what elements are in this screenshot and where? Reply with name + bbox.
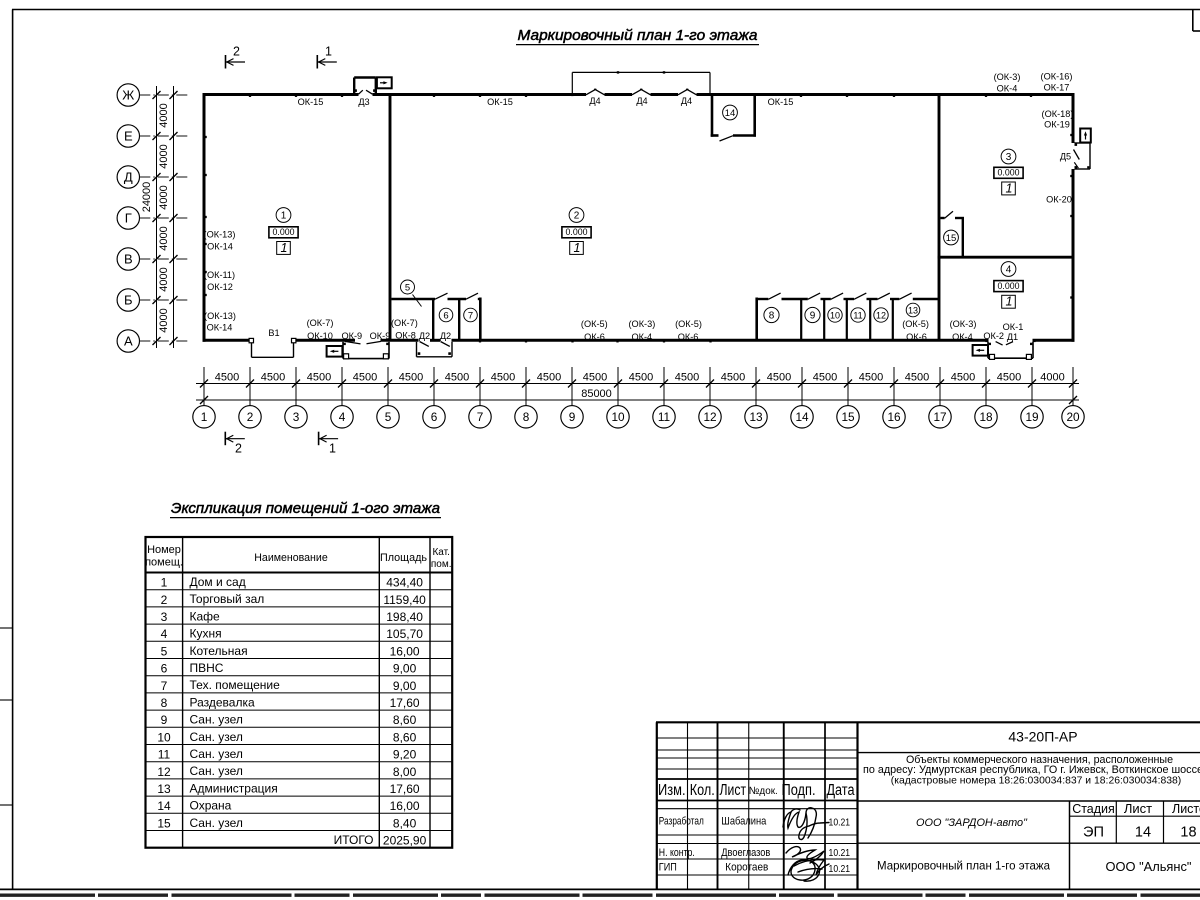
svg-text:14: 14	[725, 108, 736, 119]
svg-text:Подп.: Подп.	[782, 782, 816, 799]
svg-text:4500: 4500	[307, 371, 331, 383]
svg-text:ОК-10: ОК-10	[307, 331, 333, 341]
svg-text:ОК-15: ОК-15	[768, 97, 794, 107]
svg-text:4000: 4000	[158, 144, 170, 168]
svg-text:помещ.: помещ.	[145, 557, 183, 569]
svg-text:105,70: 105,70	[386, 627, 423, 641]
svg-text:0.000: 0.000	[997, 281, 1019, 291]
svg-text:1: 1	[325, 45, 332, 59]
svg-text:16: 16	[887, 410, 901, 424]
svg-text:3: 3	[293, 410, 300, 424]
svg-text:5: 5	[161, 644, 168, 658]
svg-text:4500: 4500	[537, 371, 561, 383]
svg-text:10.21: 10.21	[829, 848, 851, 859]
svg-text:ООО "Альянс": ООО "Альянс"	[1106, 859, 1192, 874]
svg-text:6: 6	[431, 410, 438, 424]
svg-text:ОК-6: ОК-6	[584, 332, 605, 342]
svg-text:85000: 85000	[581, 388, 612, 400]
svg-text:9,20: 9,20	[393, 748, 417, 762]
svg-text:4500: 4500	[629, 371, 653, 383]
svg-text:Дата: Дата	[827, 782, 855, 799]
svg-text:(ОК-3): (ОК-3)	[994, 72, 1021, 82]
svg-text:Сан. узел: Сан. узел	[190, 713, 243, 727]
svg-text:1: 1	[281, 211, 287, 222]
svg-text:17,60: 17,60	[390, 696, 420, 710]
svg-text:Изм.: Изм.	[658, 782, 686, 799]
svg-text:3: 3	[1006, 152, 1012, 163]
svg-text:(ОК-11): (ОК-11)	[204, 270, 235, 280]
svg-text:ОК-19: ОК-19	[1044, 120, 1070, 130]
svg-text:Маркировочный план 1-го этажа: Маркировочный план 1-го этажа	[877, 859, 1051, 872]
svg-text:2: 2	[247, 410, 254, 424]
svg-text:4000: 4000	[158, 226, 170, 250]
svg-text:Маркировочный план 1-го этажа: Маркировочный план 1-го этажа	[518, 28, 758, 44]
svg-text:17,60: 17,60	[390, 782, 420, 796]
svg-text:Д: Д	[124, 170, 133, 185]
svg-text:(ОК-7): (ОК-7)	[391, 318, 418, 328]
svg-text:4000: 4000	[158, 185, 170, 209]
svg-text:2: 2	[233, 45, 240, 59]
svg-text:Шабалина: Шабалина	[721, 816, 766, 828]
svg-text:198,40: 198,40	[386, 610, 423, 624]
svg-text:4500: 4500	[583, 371, 607, 383]
svg-text:ОК-14: ОК-14	[207, 241, 233, 251]
svg-text:0.000: 0.000	[997, 168, 1019, 178]
svg-text:1: 1	[329, 441, 336, 455]
svg-text:6: 6	[443, 311, 448, 322]
svg-text:15: 15	[946, 233, 957, 244]
svg-text:10.21: 10.21	[829, 817, 851, 828]
svg-text:4500: 4500	[951, 371, 975, 383]
svg-text:Д4: Д4	[589, 96, 600, 106]
svg-text:Кафе: Кафе	[190, 609, 221, 623]
svg-text:2: 2	[161, 593, 168, 607]
svg-text:14: 14	[1135, 825, 1151, 841]
svg-text:15: 15	[841, 410, 855, 424]
svg-text:(ОК-5): (ОК-5)	[675, 319, 702, 329]
svg-text:13: 13	[908, 306, 918, 316]
svg-text:4500: 4500	[813, 371, 837, 383]
svg-text:4500: 4500	[721, 371, 745, 383]
svg-text:14: 14	[157, 799, 171, 813]
svg-text:0.000: 0.000	[272, 227, 294, 237]
svg-text:Кухня: Кухня	[190, 627, 222, 641]
svg-text:0.000: 0.000	[565, 227, 587, 237]
svg-text:Д2: Д2	[419, 331, 430, 341]
svg-text:17: 17	[933, 410, 946, 424]
svg-text:8,40: 8,40	[393, 816, 417, 830]
svg-text:Д2: Д2	[440, 331, 451, 341]
svg-text:Наименование: Наименование	[254, 552, 328, 564]
svg-text:10: 10	[157, 730, 171, 744]
svg-text:ИТОГО: ИТОГО	[334, 833, 374, 847]
svg-text:1: 1	[201, 410, 208, 424]
svg-text:7: 7	[468, 311, 473, 322]
svg-text:12: 12	[876, 311, 886, 321]
svg-text:Разработал: Разработал	[659, 816, 704, 828]
svg-text:(ОК-13): (ОК-13)	[204, 311, 236, 321]
svg-text:ОК-4: ОК-4	[952, 332, 973, 342]
svg-text:13: 13	[749, 410, 763, 424]
svg-text:(ОК-5): (ОК-5)	[902, 319, 929, 329]
svg-text:ОК-6: ОК-6	[906, 332, 927, 342]
svg-text:24000: 24000	[141, 182, 153, 213]
svg-text:8,60: 8,60	[393, 713, 417, 727]
svg-text:В: В	[124, 252, 133, 267]
svg-text:Экспликация помещений 1-ого эт: Экспликация помещений 1-ого этажа	[171, 501, 440, 517]
svg-text:ОК-1: ОК-1	[1003, 322, 1024, 332]
svg-text:9: 9	[161, 713, 168, 727]
svg-text:5: 5	[405, 283, 410, 294]
svg-text:ОК-17: ОК-17	[1044, 83, 1070, 93]
svg-text:Б: Б	[124, 293, 133, 308]
svg-text:ОК-20: ОК-20	[1046, 194, 1072, 204]
svg-text:4500: 4500	[445, 371, 469, 383]
svg-text:Д4: Д4	[636, 96, 647, 106]
svg-text:8,00: 8,00	[393, 765, 417, 779]
svg-text:ПВНС: ПВНС	[190, 661, 224, 675]
svg-text:8: 8	[769, 311, 775, 322]
svg-text:11: 11	[658, 410, 670, 424]
svg-text:ОК-14: ОК-14	[207, 322, 233, 332]
svg-text:Лист: Лист	[1124, 801, 1152, 816]
svg-text:Дом и сад: Дом и сад	[190, 575, 246, 589]
svg-text:5: 5	[385, 410, 392, 424]
svg-text:Администрация: Администрация	[190, 781, 278, 795]
svg-text:ОК-6: ОК-6	[678, 332, 699, 342]
svg-text:6: 6	[161, 662, 168, 676]
svg-text:2025,90: 2025,90	[383, 834, 427, 848]
svg-text:ОК-8: ОК-8	[395, 330, 416, 340]
svg-text:4500: 4500	[491, 371, 515, 383]
svg-text:(ОК-13): (ОК-13)	[204, 229, 236, 239]
svg-text:9: 9	[569, 410, 576, 424]
svg-text:Е: Е	[124, 129, 133, 144]
svg-text:4500: 4500	[215, 371, 239, 383]
svg-text:Стадия: Стадия	[1072, 802, 1115, 816]
svg-text:ОК-15: ОК-15	[298, 97, 324, 107]
svg-text:ОК-4: ОК-4	[631, 332, 652, 342]
svg-text:Площадь: Площадь	[380, 552, 427, 564]
svg-text:4: 4	[339, 410, 346, 424]
svg-text:Охрана: Охрана	[190, 799, 232, 813]
svg-text:ГИП: ГИП	[659, 862, 677, 874]
svg-text:4: 4	[161, 627, 168, 641]
svg-text:по адресу: Удмуртская республи: по адресу: Удмуртская республика, ГО г. …	[863, 764, 1200, 776]
svg-text:12: 12	[157, 765, 171, 779]
svg-text:1: 1	[1006, 181, 1013, 195]
svg-text:10: 10	[830, 311, 840, 321]
svg-text:4500: 4500	[353, 371, 377, 383]
svg-text:4500: 4500	[675, 371, 699, 383]
svg-text:Котельная: Котельная	[190, 644, 248, 658]
svg-text:19: 19	[1025, 410, 1038, 424]
svg-text:4: 4	[1006, 265, 1012, 276]
svg-text:(ОК-18): (ОК-18)	[1042, 109, 1074, 119]
svg-text:16,00: 16,00	[390, 644, 420, 658]
svg-text:(ОК-3): (ОК-3)	[629, 319, 656, 329]
svg-text:20: 20	[1066, 410, 1080, 424]
svg-text:4500: 4500	[261, 371, 285, 383]
svg-text:Торговый зал: Торговый зал	[190, 592, 265, 606]
svg-text:4500: 4500	[997, 371, 1021, 383]
svg-text:Кол.: Кол.	[690, 782, 715, 799]
svg-text:10.21: 10.21	[829, 864, 851, 875]
svg-text:4000: 4000	[158, 308, 170, 332]
svg-text:18: 18	[1180, 825, 1196, 841]
svg-text:4000: 4000	[158, 103, 170, 127]
svg-text:8,60: 8,60	[393, 730, 417, 744]
svg-text:Двоеглазов: Двоеглазов	[721, 847, 770, 859]
svg-text:16,00: 16,00	[390, 799, 420, 813]
svg-text:А: А	[124, 334, 133, 349]
svg-text:Ж: Ж	[122, 88, 134, 103]
svg-text:(ОК-3): (ОК-3)	[950, 319, 977, 329]
svg-text:ООО "ЗАРДОН-авто": ООО "ЗАРДОН-авто"	[916, 817, 1028, 829]
svg-text:ОК-4: ОК-4	[997, 83, 1018, 93]
svg-text:Лист: Лист	[720, 782, 747, 799]
svg-text:ОК-12: ОК-12	[207, 282, 233, 292]
svg-text:Сан. узел: Сан. узел	[190, 816, 243, 830]
svg-text:Д3: Д3	[358, 97, 369, 107]
svg-text:Д5: Д5	[1060, 151, 1071, 161]
svg-text:11: 11	[158, 748, 171, 762]
svg-text:11: 11	[853, 311, 862, 321]
svg-text:4500: 4500	[905, 371, 929, 383]
svg-text:2: 2	[574, 211, 580, 222]
svg-text:Сан. узел: Сан. узел	[190, 730, 243, 744]
svg-text:(кадастровые номера 18:26:0300: (кадастровые номера 18:26:030034:837 и 1…	[891, 775, 1182, 786]
svg-text:18: 18	[979, 410, 993, 424]
svg-text:(ОК-5): (ОК-5)	[581, 319, 608, 329]
svg-text:4500: 4500	[859, 371, 883, 383]
svg-text:12: 12	[703, 410, 716, 424]
svg-text:Листов: Листов	[1172, 802, 1200, 816]
svg-text:Сан. узел: Сан. узел	[190, 764, 243, 778]
svg-text:ЭП: ЭП	[1083, 825, 1104, 841]
svg-text:8: 8	[523, 410, 530, 424]
svg-text:пом.: пом.	[431, 559, 452, 570]
svg-text:8: 8	[161, 696, 168, 710]
svg-text:7: 7	[161, 679, 168, 693]
svg-text:10: 10	[611, 410, 625, 424]
svg-text:(ОК-7): (ОК-7)	[307, 318, 334, 328]
svg-text:9,00: 9,00	[393, 679, 417, 693]
svg-text:9,00: 9,00	[393, 662, 417, 676]
svg-text:3: 3	[161, 610, 168, 624]
svg-text:9: 9	[810, 311, 816, 322]
svg-text:4500: 4500	[399, 371, 423, 383]
svg-text:1: 1	[574, 241, 581, 255]
svg-text:Кат.: Кат.	[432, 547, 449, 558]
svg-text:Номер: Номер	[147, 544, 181, 556]
svg-text:Тех. помещение: Тех. помещение	[190, 678, 281, 692]
svg-text:4500: 4500	[767, 371, 791, 383]
svg-text:Д4: Д4	[681, 96, 692, 106]
svg-text:ОК-2: ОК-2	[983, 331, 1004, 341]
svg-text:13: 13	[157, 782, 171, 796]
svg-text:Д1: Д1	[1007, 332, 1018, 342]
svg-text:4000: 4000	[1040, 371, 1064, 383]
svg-text:2: 2	[235, 441, 242, 455]
svg-text:В1: В1	[268, 328, 279, 338]
svg-text:14: 14	[795, 410, 809, 424]
svg-text:4000: 4000	[158, 267, 170, 291]
svg-text:Г: Г	[125, 211, 132, 226]
svg-text:Коротаев: Коротаев	[725, 862, 768, 874]
svg-text:1: 1	[161, 576, 168, 590]
svg-text:Раздевалка: Раздевалка	[190, 695, 255, 709]
svg-text:Сан. узел: Сан. узел	[190, 747, 243, 761]
svg-text:Н. контр.: Н. контр.	[659, 847, 695, 859]
svg-text:434,40: 434,40	[386, 576, 423, 590]
svg-text:1: 1	[281, 241, 288, 255]
svg-text:15: 15	[157, 816, 171, 830]
svg-text:7: 7	[477, 410, 484, 424]
svg-text:(ОК-16): (ОК-16)	[1041, 71, 1073, 81]
svg-text:43-20П-АР: 43-20П-АР	[1008, 729, 1077, 745]
svg-text:1159,40: 1159,40	[383, 593, 426, 607]
svg-text:№док.: №док.	[749, 785, 778, 797]
svg-text:ОК-15: ОК-15	[487, 97, 513, 107]
svg-text:1: 1	[1006, 295, 1013, 309]
svg-text:ОК-9: ОК-9	[341, 331, 362, 341]
svg-text:ОК-9: ОК-9	[370, 331, 391, 341]
